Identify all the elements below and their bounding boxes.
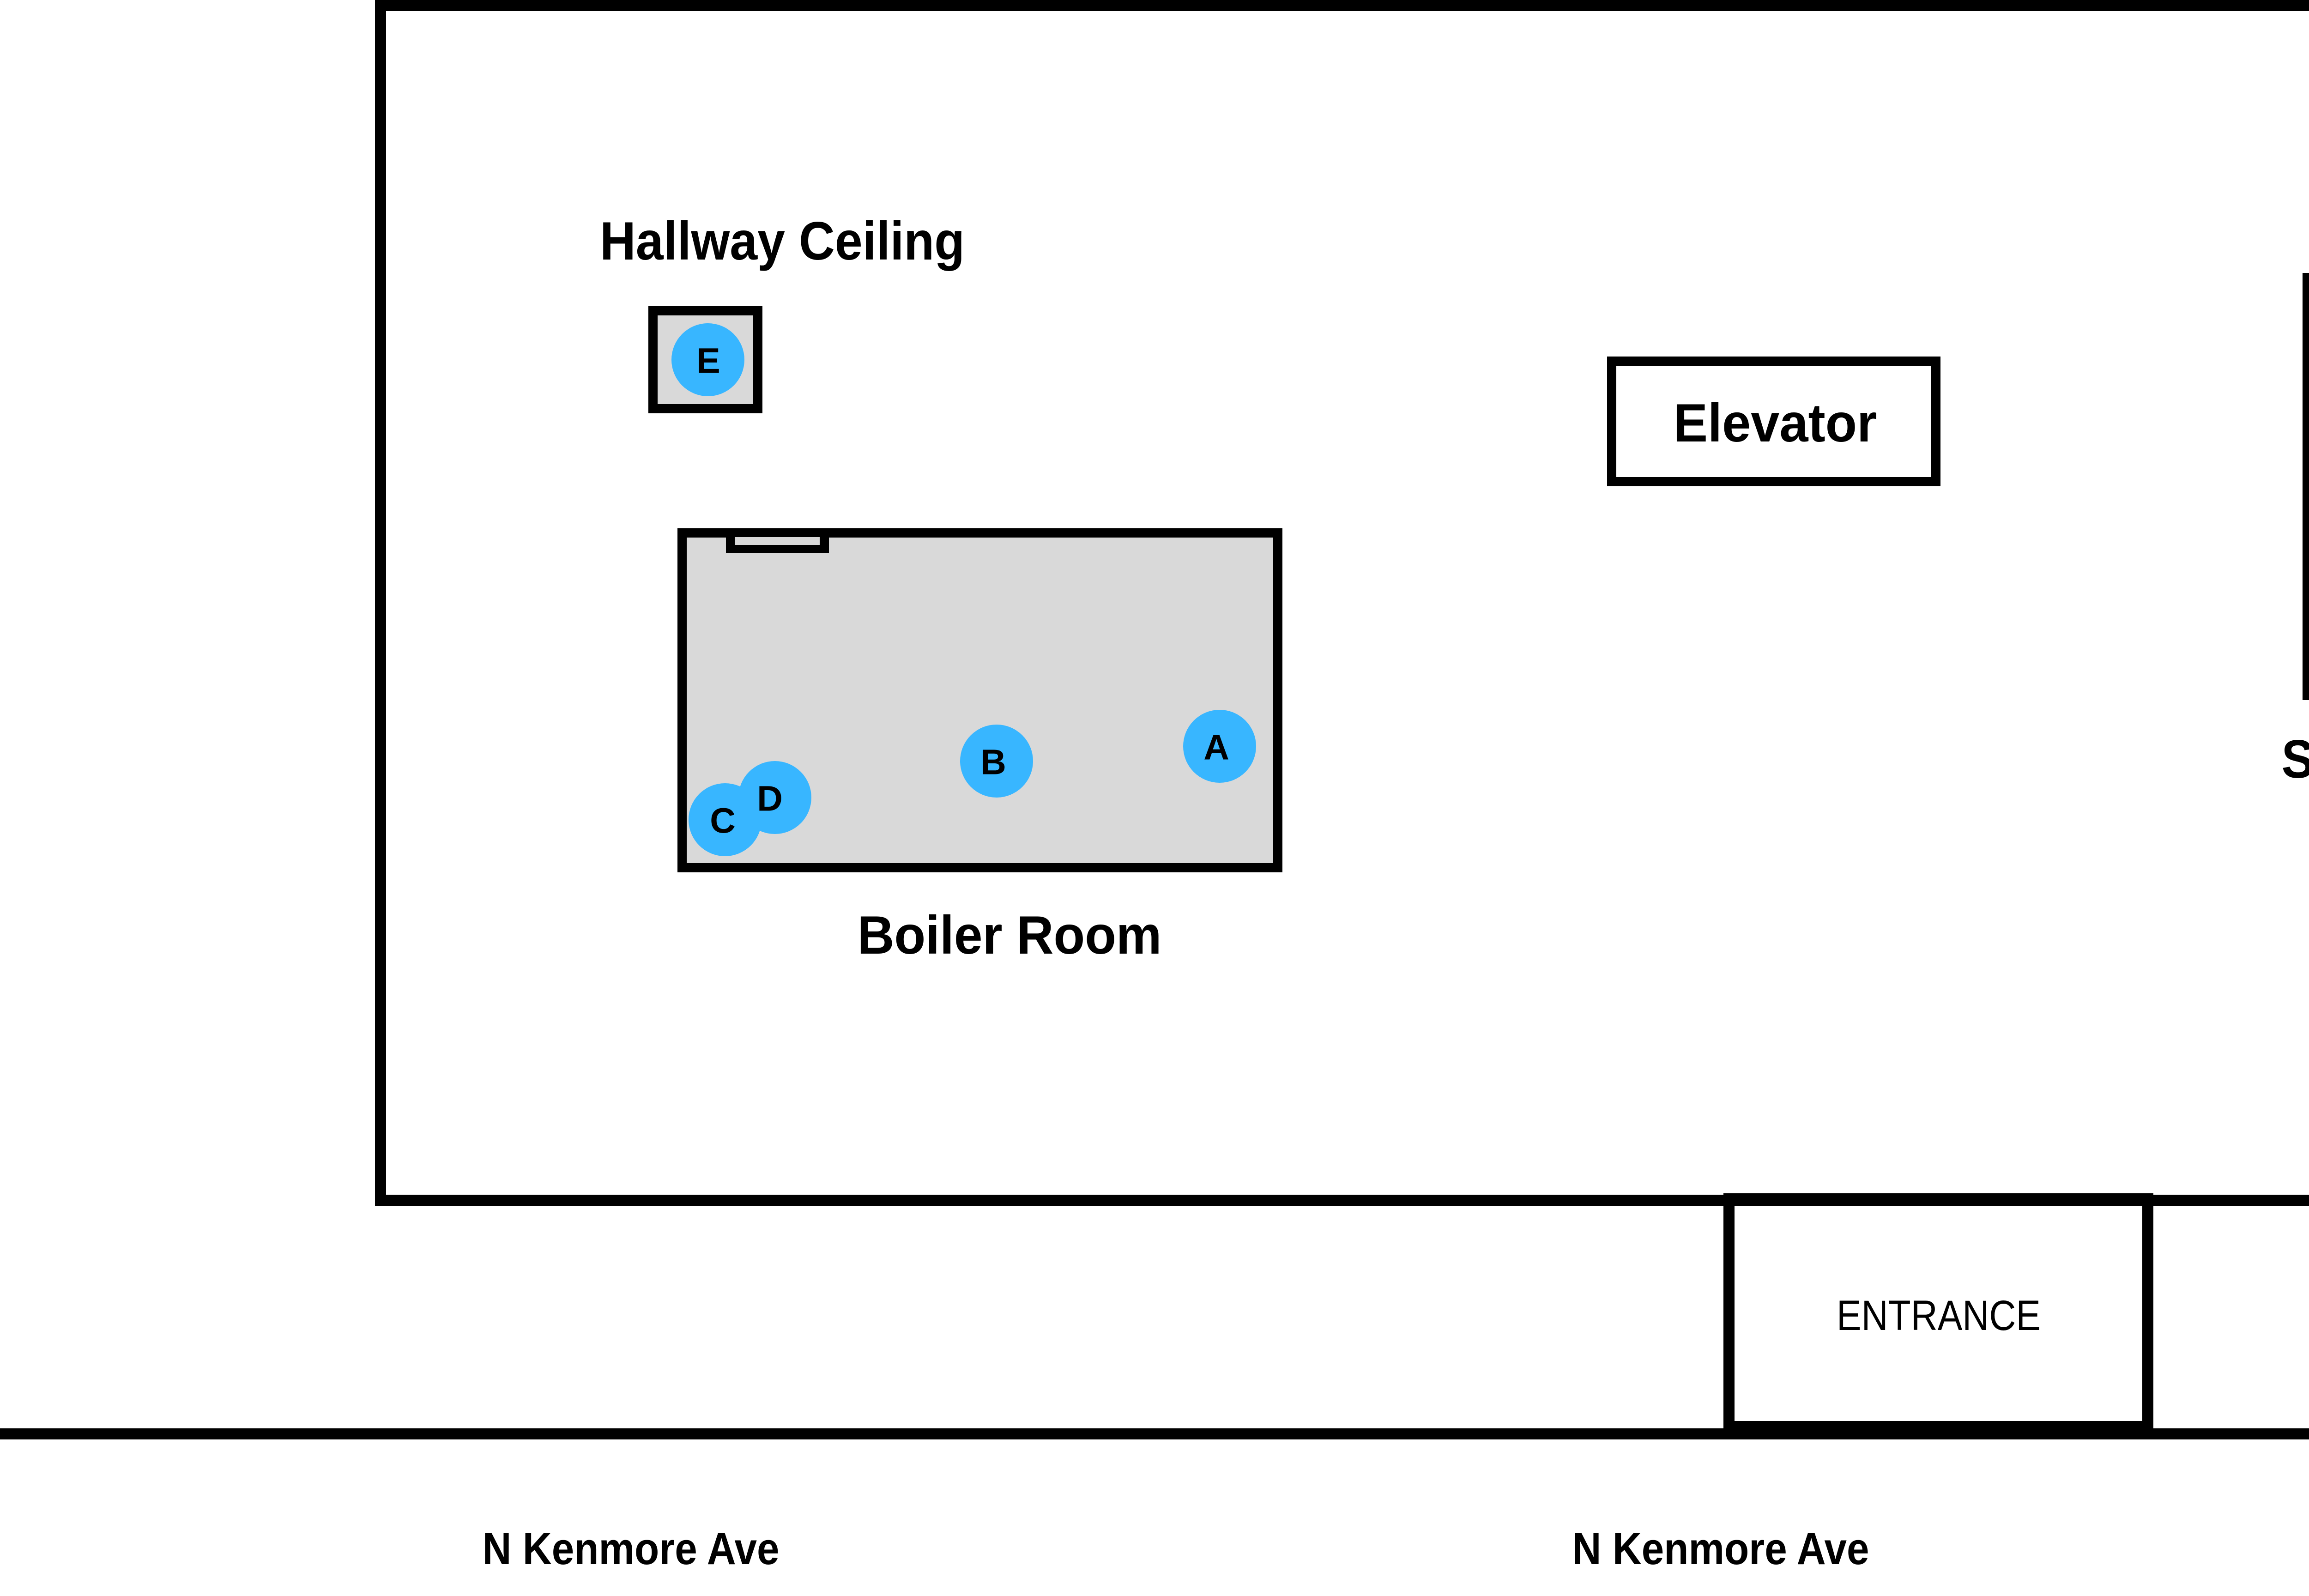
svg-text:ENTRANCE: ENTRANCE [1837,1292,2041,1339]
svg-text:Elevator: Elevator [1674,393,1877,453]
svg-text:N Kenmore Ave: N Kenmore Ave [1572,1523,1869,1574]
svg-text:C: C [710,801,736,841]
svg-text:Hallway Ceiling: Hallway Ceiling [600,211,965,271]
svg-text:B: B [980,743,1006,782]
svg-text:A: A [1203,728,1229,768]
svg-text:E: E [696,341,720,381]
svg-text:D: D [757,779,783,819]
svg-text:Boiler Room: Boiler Room [858,905,1162,965]
svg-text:N Kenmore Ave: N Kenmore Ave [483,1523,780,1574]
svg-text:Storage Room: Storage Room [2282,729,2309,789]
